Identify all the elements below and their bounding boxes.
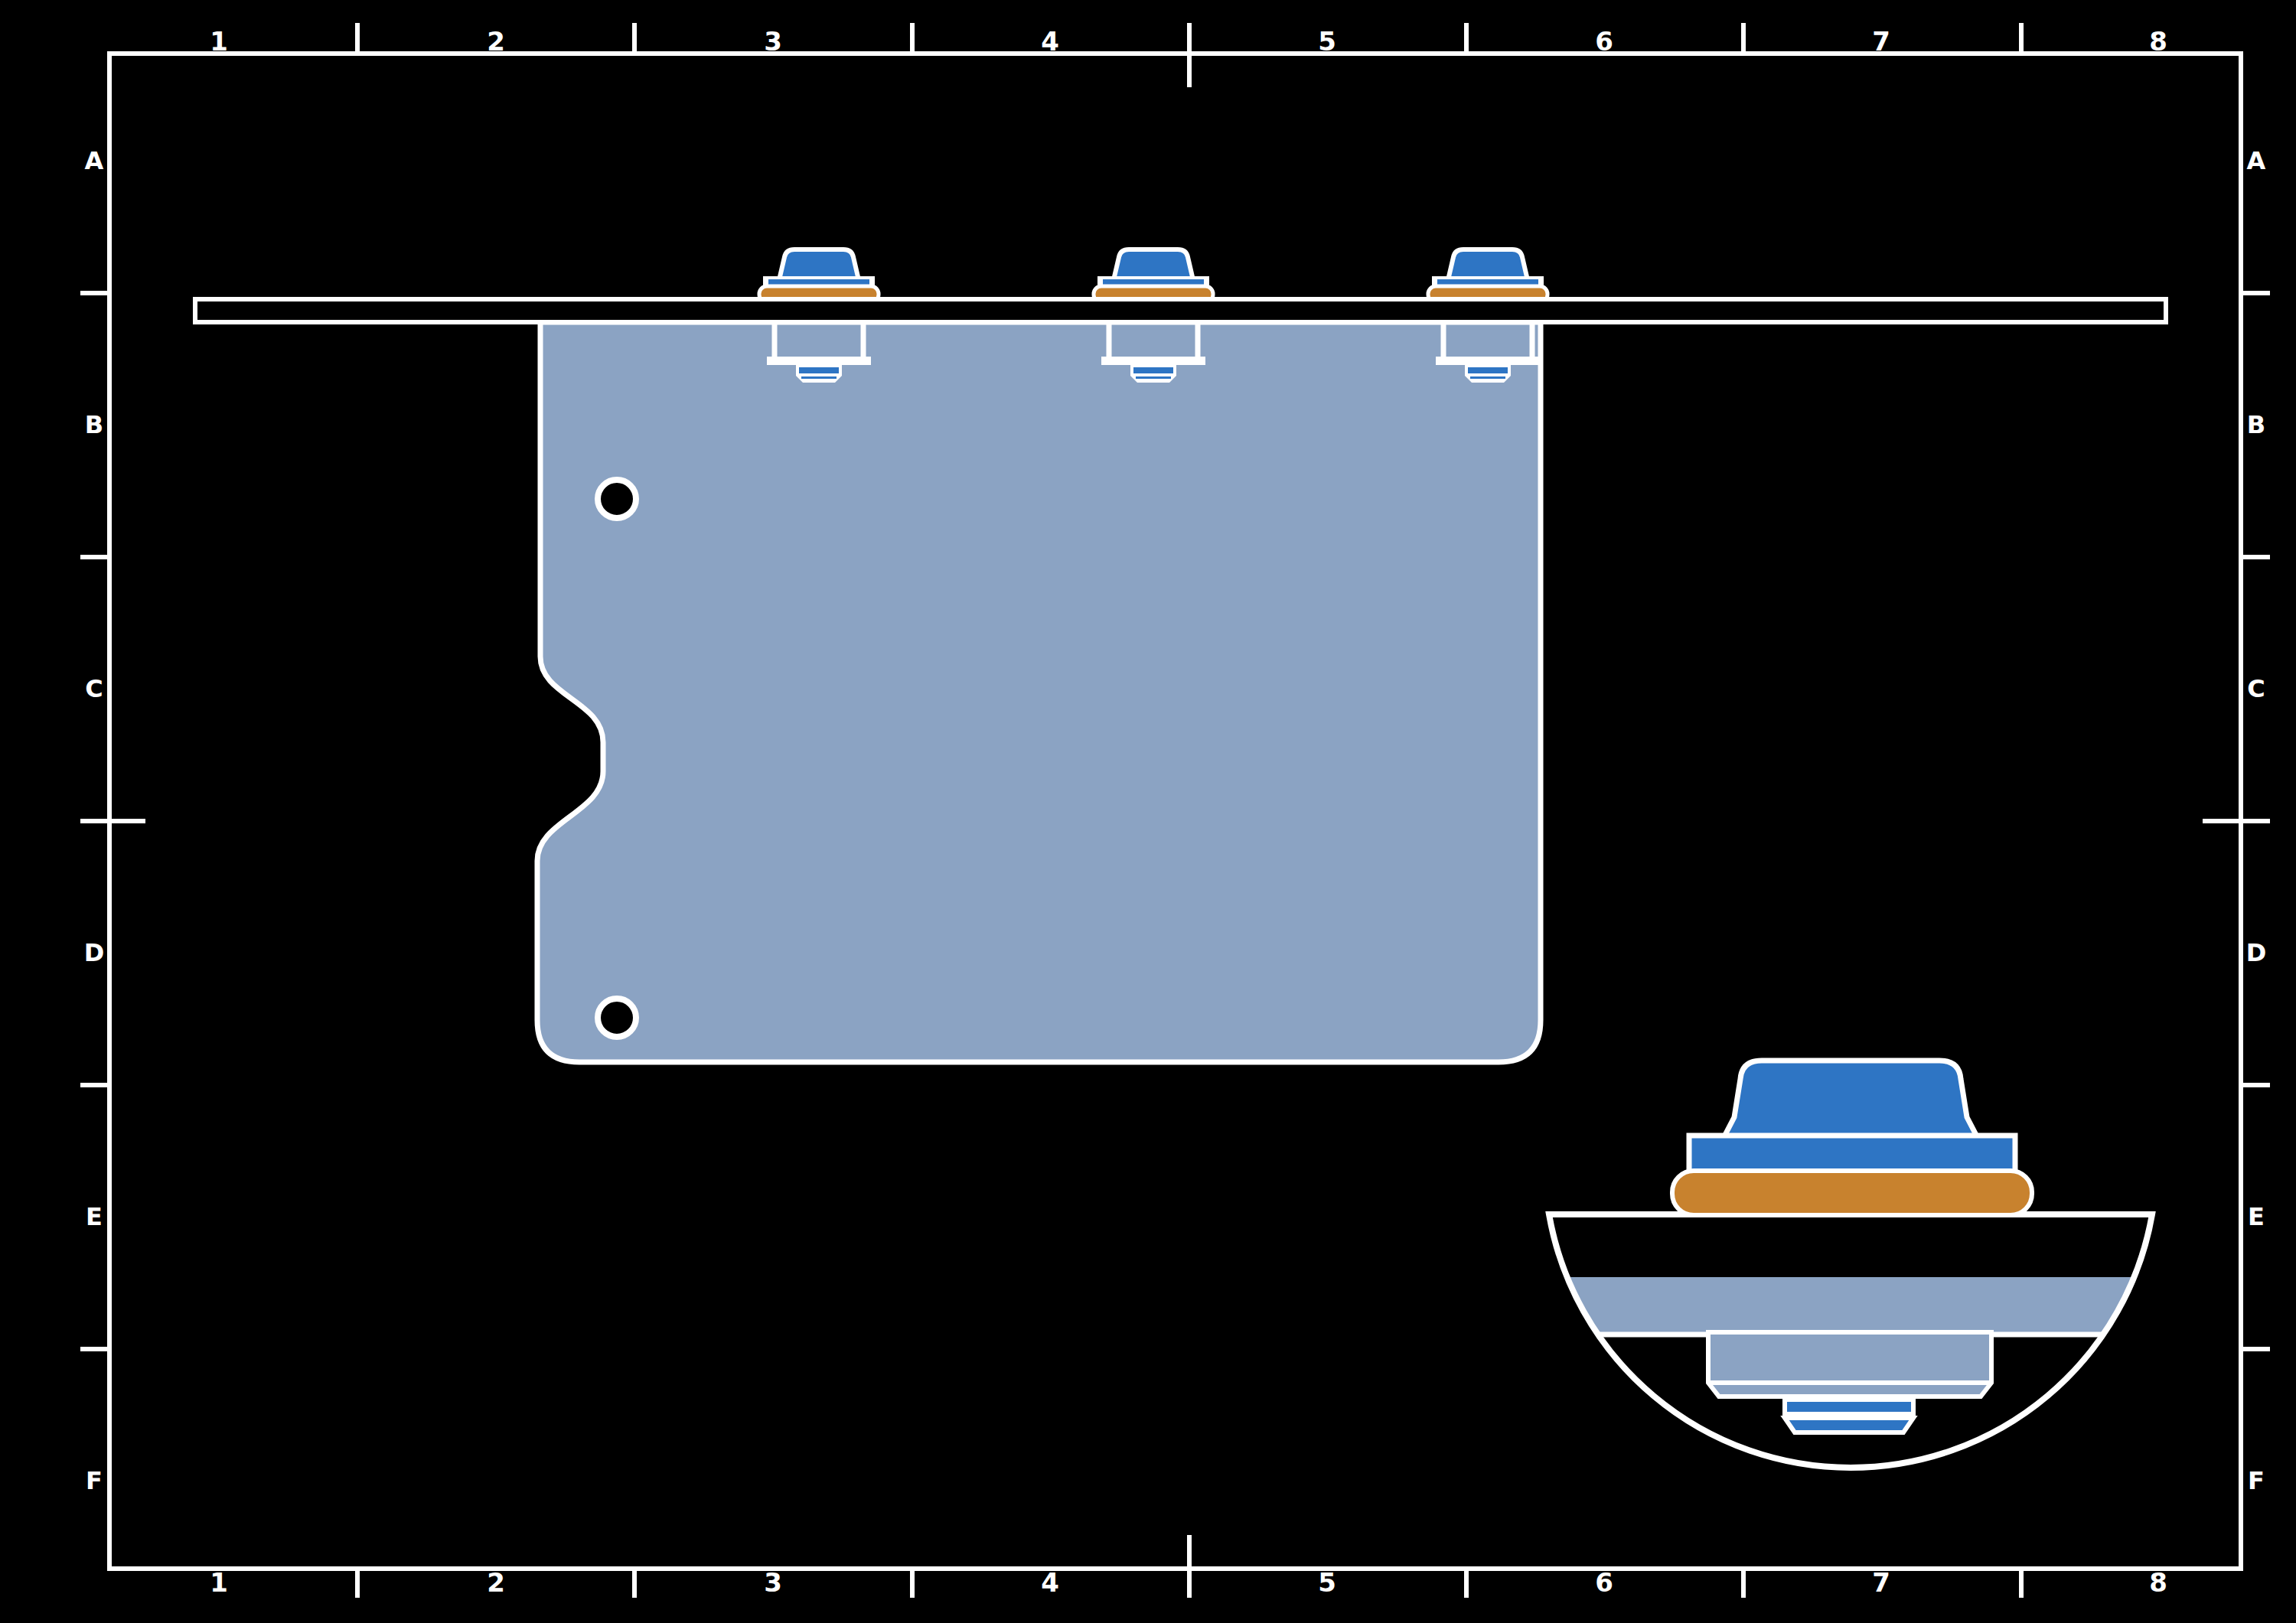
fastener-head-icon xyxy=(779,249,859,280)
detail-bushing xyxy=(1708,1332,1991,1396)
fastener-head-icon xyxy=(1114,249,1193,280)
mounting-bar xyxy=(195,299,2166,322)
fastener-head-icon xyxy=(1448,249,1528,280)
column-label-top: 6 xyxy=(1595,26,1613,57)
column-label-top: 4 xyxy=(1041,26,1059,57)
detail-stud-tip-upper xyxy=(1785,1400,1913,1414)
stud-tip-stripe xyxy=(1133,367,1173,373)
row-label-left: A xyxy=(85,146,104,175)
panel-hole-upper xyxy=(598,480,636,518)
detail-fastener-washer xyxy=(1672,1171,2032,1215)
row-label-left: D xyxy=(84,938,105,967)
stud-tip-line xyxy=(1470,376,1505,379)
stud-tip-line xyxy=(1136,376,1171,379)
row-label-right: D xyxy=(2246,938,2267,967)
stud-plate xyxy=(1101,357,1205,365)
stud-plate xyxy=(1436,357,1540,365)
row-label-left: B xyxy=(85,410,103,439)
stud-tip-line xyxy=(801,376,837,379)
technical-drawing-canvas: 1 2 3 4 5 6 7 8 1 2 3 4 5 6 7 8 A B C D … xyxy=(0,0,2296,1623)
column-label-top: 5 xyxy=(1318,26,1336,57)
column-label-top: 1 xyxy=(210,26,228,57)
column-label-top: 7 xyxy=(1872,26,1890,57)
detail-section-view xyxy=(1544,1061,2157,1468)
detail-fastener-head-icon xyxy=(1724,1061,1978,1138)
row-label-left: E xyxy=(86,1202,103,1231)
column-label-top: 8 xyxy=(2149,26,2167,57)
detail-panel-layer xyxy=(1544,1277,2157,1332)
column-label-bottom: 6 xyxy=(1595,1567,1613,1598)
column-label-bottom: 4 xyxy=(1041,1567,1059,1598)
row-label-right: F xyxy=(2248,1466,2265,1495)
bracket-panel xyxy=(537,322,1541,1062)
main-assembly-view xyxy=(195,249,2166,1062)
row-label-right: E xyxy=(2248,1202,2265,1231)
column-label-top: 3 xyxy=(764,26,782,57)
stud-plate xyxy=(767,357,871,365)
row-label-right: B xyxy=(2247,410,2265,439)
stud-tip-stripe xyxy=(799,367,839,373)
column-label-bottom: 5 xyxy=(1318,1567,1336,1598)
stud-tip-stripe xyxy=(1468,367,1508,373)
detail-fastener-collar xyxy=(1689,1136,2015,1172)
row-label-right: A xyxy=(2247,146,2266,175)
column-label-bottom: 7 xyxy=(1872,1567,1890,1598)
detail-stud-tip-lower xyxy=(1785,1418,1913,1432)
column-label-bottom: 2 xyxy=(487,1567,505,1598)
column-label-bottom: 3 xyxy=(764,1567,782,1598)
row-label-left: F xyxy=(86,1466,103,1495)
column-label-bottom: 8 xyxy=(2149,1567,2167,1598)
column-label-bottom: 1 xyxy=(210,1567,228,1598)
panel-hole-lower xyxy=(598,999,636,1037)
row-label-left: C xyxy=(85,674,103,703)
column-label-top: 2 xyxy=(487,26,505,57)
row-label-right: C xyxy=(2247,674,2265,703)
